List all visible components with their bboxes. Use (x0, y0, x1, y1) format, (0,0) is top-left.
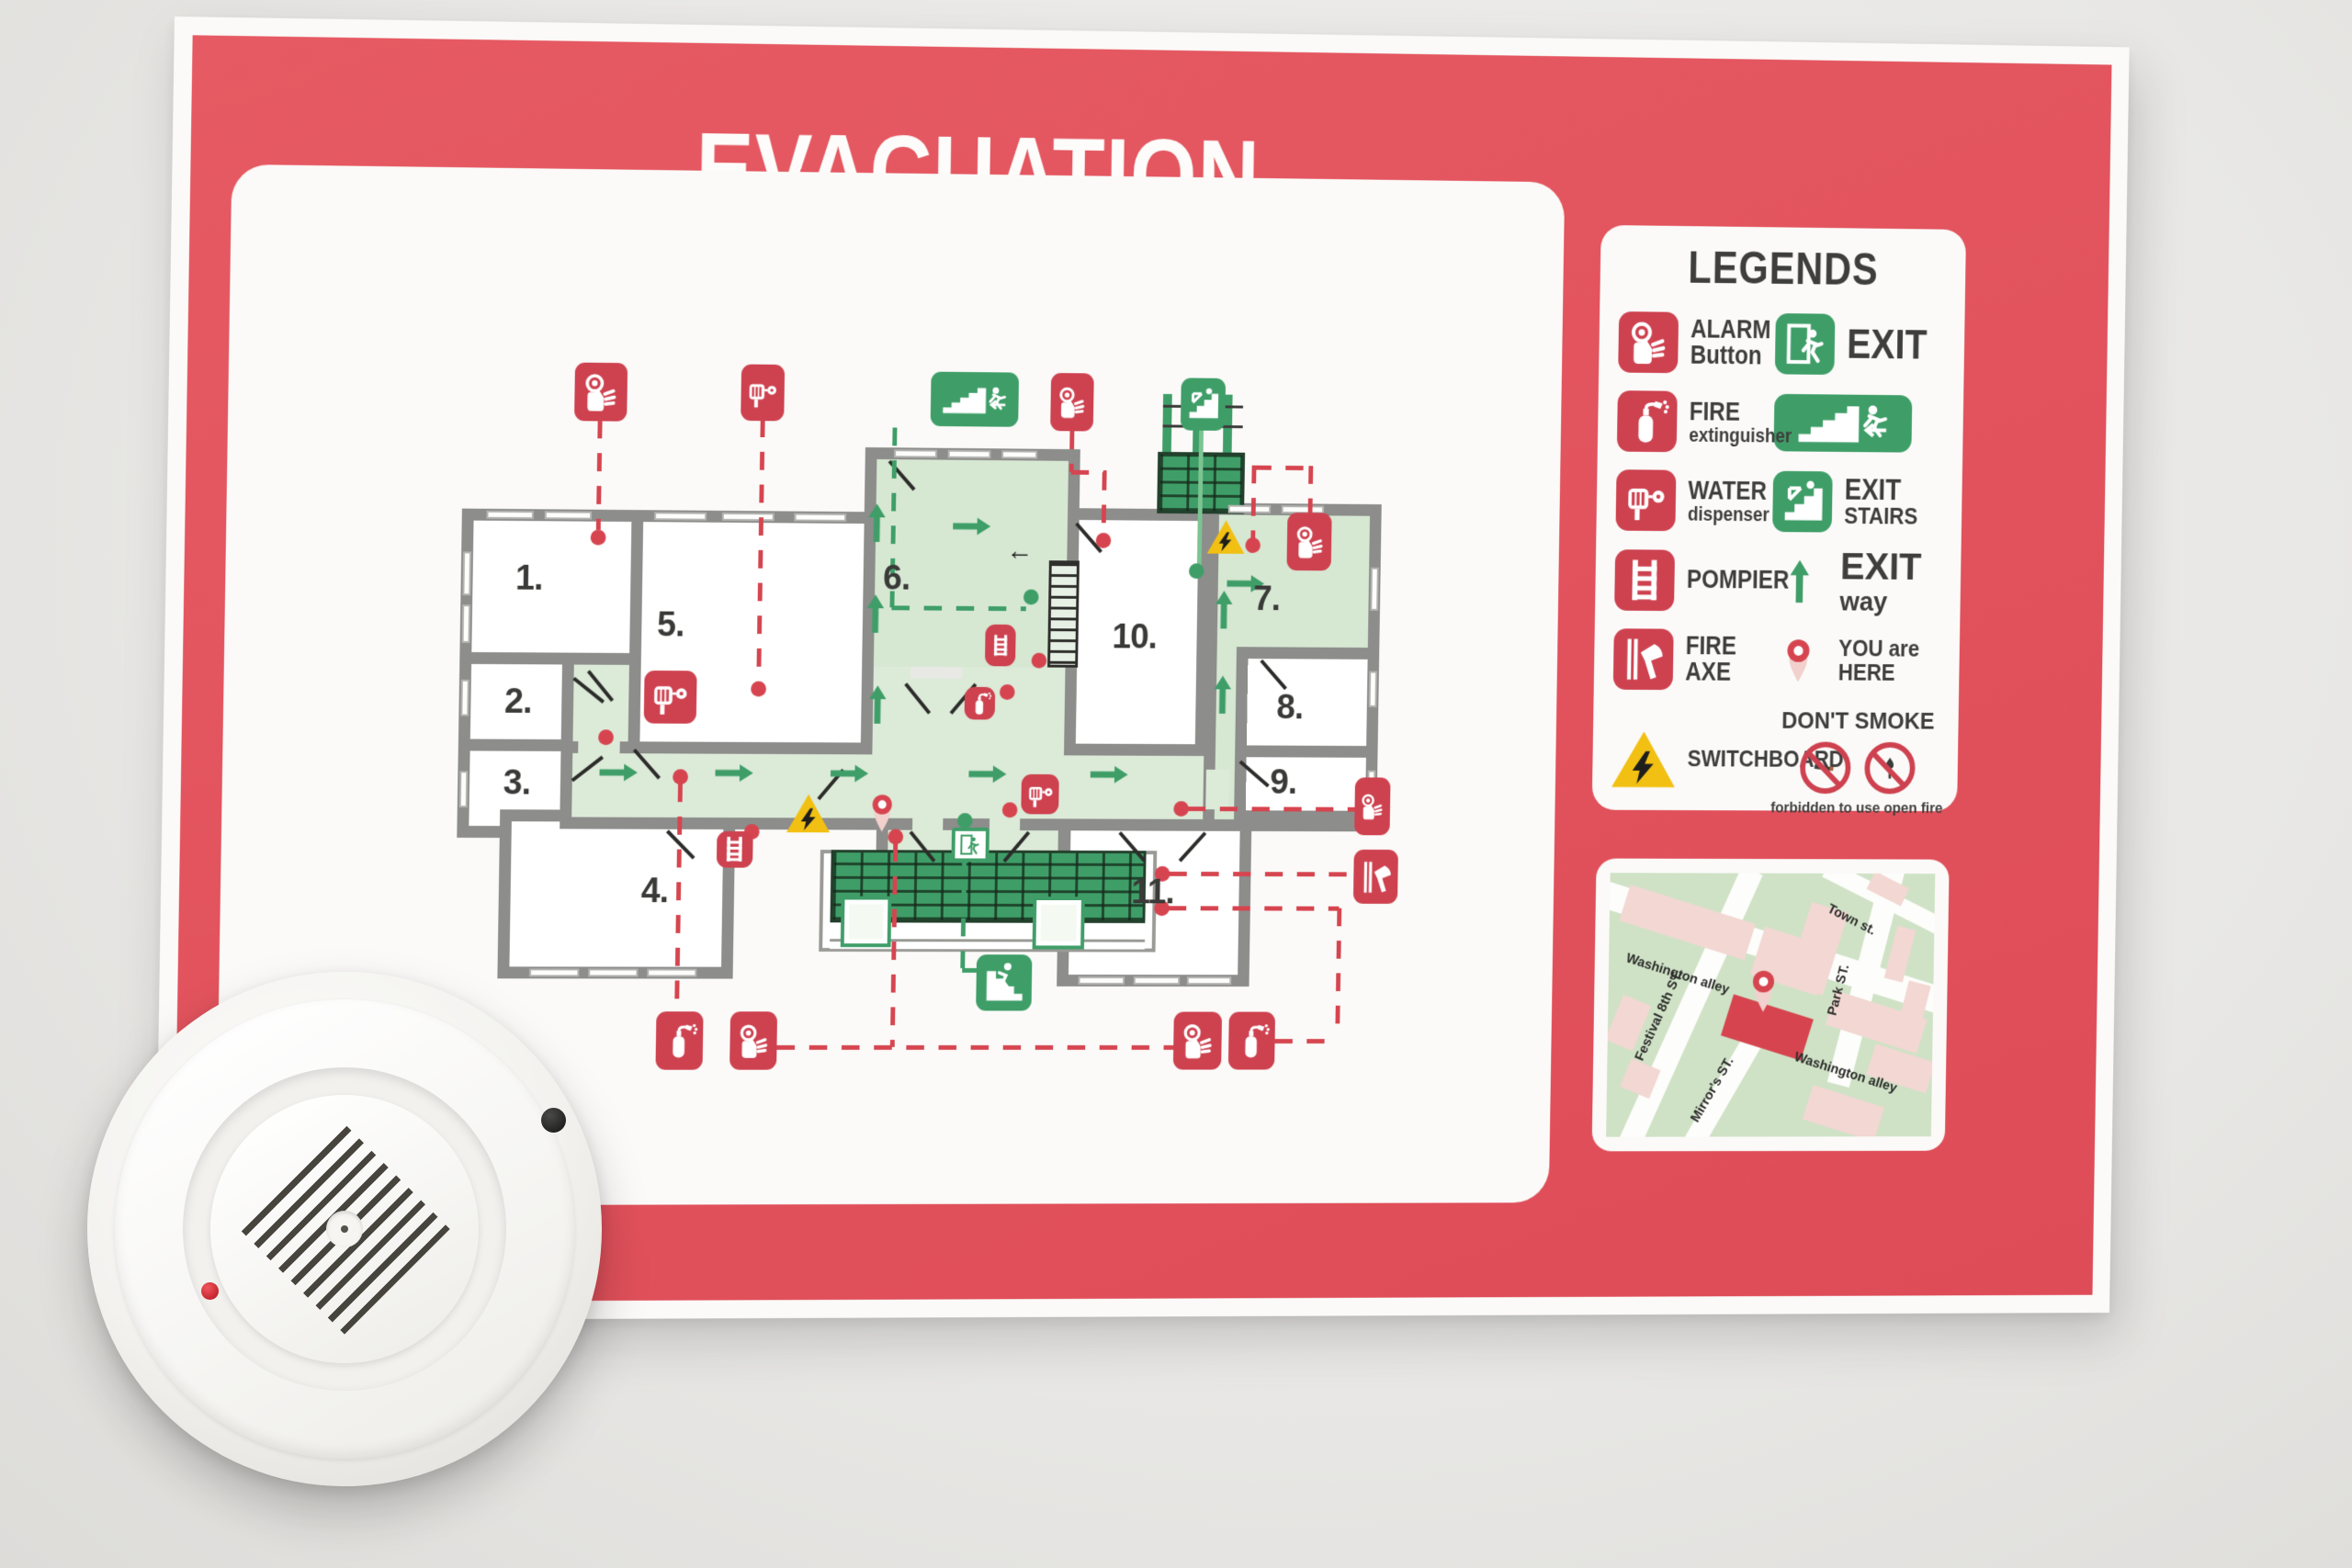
route-line-red (1188, 807, 1355, 812)
street-map: Washington alley Town st. Park ST. Festi… (1606, 873, 1935, 1136)
room-label-7: 7. (1253, 581, 1280, 619)
fire-extinguisher-icon (965, 687, 996, 720)
legend-fire-extinguisher: FIREextinguisher (1610, 381, 1768, 462)
legend-water-dispenser: WATERdispenser (1609, 460, 1767, 540)
route-line-red (1169, 906, 1340, 910)
room-walls (497, 809, 735, 978)
fire-extinguisher-icon (1617, 390, 1678, 452)
exit-way-arrow (967, 764, 1008, 784)
room-label-6: 6. (883, 559, 910, 599)
window (1228, 505, 1272, 513)
alarm-button-icon (1173, 1012, 1222, 1070)
legend-you-are-here: YOU are HERE (1763, 621, 1948, 701)
door-opening (910, 667, 963, 679)
window (459, 771, 469, 807)
room-label-11: 11. (1131, 874, 1174, 912)
fire-axe-icon (1613, 628, 1674, 690)
fire-extinguisher-icon (655, 1011, 703, 1070)
route-line-red (1253, 466, 1310, 470)
room-walls (1235, 647, 1379, 758)
route-line-red (1071, 470, 1107, 475)
exit-way-arrow (713, 763, 755, 784)
exit-way-arrow (865, 592, 886, 635)
you-are-here-pin-icon (1770, 635, 1827, 685)
exit-stairs-down-icon (976, 954, 1032, 1010)
staircase-arrow: ← (1006, 536, 1034, 567)
door-opening (578, 741, 620, 753)
alarm-button-icon (574, 363, 628, 422)
exit-stairs-down-sign-icon (931, 372, 1019, 427)
pompier-ladder-icon (985, 625, 1016, 667)
map-building (1884, 926, 1917, 983)
legend-exit-stairs-banner (1767, 383, 1951, 464)
door-opening (1205, 770, 1229, 809)
no-smoking-icon (1800, 741, 1851, 794)
exit-icon (951, 828, 989, 863)
window (545, 511, 592, 519)
exit-way-arrow (867, 683, 888, 726)
exit-way-arrow (597, 762, 639, 783)
room-label-9: 9. (1270, 763, 1296, 802)
porch-pillar (1033, 897, 1085, 949)
room-label-1: 1. (515, 559, 543, 599)
window (1187, 976, 1232, 985)
no-open-fire-icon (1864, 742, 1916, 795)
smoke-detector (87, 972, 602, 1486)
pompier-ladder-icon (1614, 549, 1675, 611)
legend-exit-stairs: EXITSTAIRS (1766, 462, 1951, 542)
switchboard-icon (1611, 731, 1676, 787)
route-line-red (1069, 431, 1075, 471)
legend-pompier: POMPIER (1607, 539, 1765, 620)
window (1369, 671, 1377, 707)
exit-way-arrow (829, 763, 870, 784)
map-building (1803, 1085, 1884, 1137)
internal-staircase (1047, 560, 1080, 668)
alarm-button-icon (729, 1011, 777, 1069)
route-line-red (1169, 872, 1353, 876)
window (722, 513, 775, 521)
detector-led (201, 1282, 219, 1300)
exit-way-arrow (866, 502, 887, 544)
alarm-button-icon (1618, 311, 1679, 373)
alarm-button-icon (1050, 373, 1094, 432)
room-label-5: 5. (657, 606, 684, 646)
route-line-red (776, 1045, 1173, 1050)
room-label-2: 2. (504, 682, 532, 722)
route-line-red (1308, 466, 1314, 513)
room-label-4: 4. (640, 872, 668, 911)
window (894, 449, 937, 457)
room-label-10: 10. (1112, 618, 1157, 658)
water-dispenser-icon (1021, 774, 1059, 815)
exit-stairs-icon (1772, 471, 1833, 533)
water-dispenser-icon (644, 671, 697, 724)
water-dispenser-icon (741, 365, 785, 422)
legend-switchboard: SWITCHBOARD (1604, 698, 1763, 820)
window (794, 513, 846, 522)
legend-exit: EXIT (1768, 304, 1952, 385)
door-opening (989, 818, 1020, 830)
route-line-red (1275, 1039, 1338, 1043)
legends-grid: ALARMButton EXIT FIREextinguisher WATERd… (1604, 302, 1953, 821)
window (1134, 976, 1181, 985)
legend-exit-way: EXIT way (1764, 541, 1949, 622)
alarm-button-icon (1354, 777, 1390, 835)
room-label-8: 8. (1276, 689, 1303, 728)
route-line-red (1335, 908, 1341, 1034)
pompier-ladder-icon (717, 831, 753, 868)
window (1079, 976, 1125, 985)
porch-pillar (841, 897, 892, 947)
window (1001, 450, 1037, 458)
window (647, 969, 696, 977)
door-opening (903, 743, 1011, 755)
window (1370, 568, 1378, 611)
exit-way-arrow-icon (1771, 552, 1828, 610)
window (460, 680, 469, 716)
you-are-here-pin-icon (865, 791, 899, 835)
fire-axe-icon (1353, 850, 1398, 904)
detector-test-button (541, 1108, 566, 1133)
exit-stairs-icon (1181, 378, 1226, 431)
legend-fire-axe: FIRE AXE (1606, 619, 1764, 699)
exit-stairs-down-sign-icon (1774, 394, 1913, 453)
window (462, 604, 471, 643)
room-label-3: 3. (503, 764, 530, 804)
window (486, 511, 534, 519)
location-map-panel: Washington alley Town st. Park ST. Festi… (1592, 859, 1950, 1152)
exit-way-arrow (951, 516, 992, 536)
photo-scene: EVACUATION PLAN ← 1. 2. 3. 4. 5. 6. 7. 8… (0, 0, 2352, 1568)
exit-way-arrow (1214, 589, 1234, 630)
exit-icon (1775, 313, 1836, 375)
alarm-button-icon (1286, 513, 1331, 570)
water-dispenser-icon (1615, 469, 1676, 531)
window (654, 512, 707, 520)
fire-extinguisher-icon (1228, 1012, 1275, 1070)
route-line-green (891, 605, 1025, 611)
legend-alarm-button: ALARMButton (1611, 302, 1769, 383)
exit-way-arrow (1213, 674, 1233, 716)
map-you-are-here-pin-icon (1745, 966, 1782, 1015)
window (462, 551, 471, 595)
legends-panel: LEGENDS ALARMButton EXIT FIREextinguishe… (1592, 225, 1966, 811)
window (948, 450, 991, 458)
door-opening (912, 818, 943, 830)
exit-way-arrow (1089, 764, 1130, 784)
room-walls (459, 509, 643, 665)
legends-title: LEGENDS (1621, 239, 1945, 296)
